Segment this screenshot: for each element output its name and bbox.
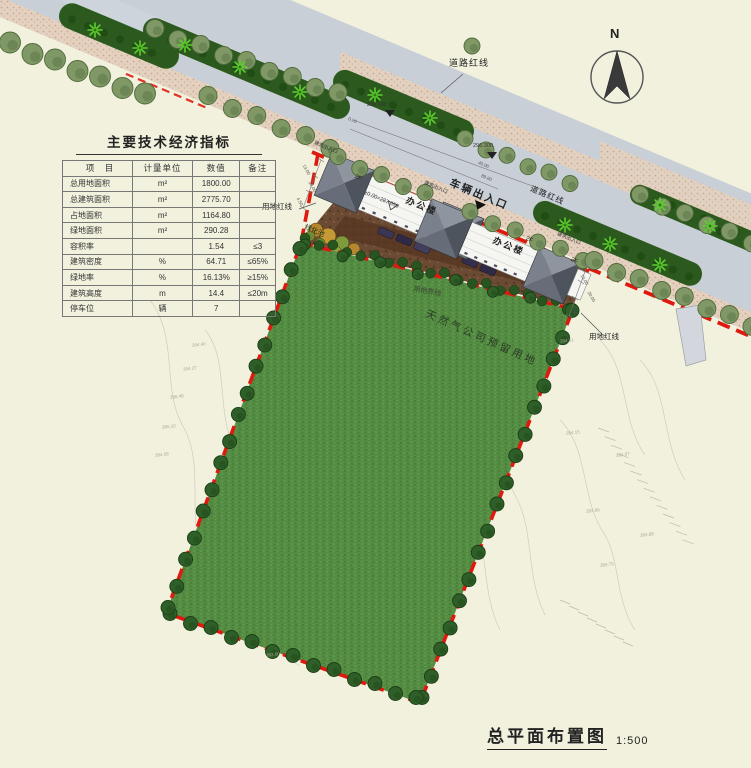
indicators-table-title: 主要技术经济指标: [76, 131, 262, 155]
table-row: 绿地面积m²290.28: [63, 223, 276, 239]
table-header-row: 项 目 计量单位 数值 备注: [63, 161, 276, 177]
title-block: 总平面布置图 1:500: [487, 722, 649, 750]
table-row: 总建筑面积m²2775.70: [63, 192, 276, 208]
table-row: 建筑高度m14.4≤20m: [63, 285, 276, 301]
drawing-scale: 1:500: [616, 735, 649, 750]
table-row: 建筑密度%64.71≤65%: [63, 254, 276, 270]
site-plan-canvas: 主要技术经济指标 项 目 计量单位 数值 备注 总用地面积m²1800.00 总…: [0, 0, 751, 768]
site-plan-drawing: [0, 0, 751, 768]
north-arrow-icon: [591, 51, 643, 103]
table-row: 总用地面积m²1800.00: [63, 176, 276, 192]
table-row: 绿地率%16.13%≥15%: [63, 270, 276, 286]
table-row: 停车位辆7: [63, 301, 276, 317]
table-row: 占地面积m²1164.80: [63, 207, 276, 223]
indicators-table: 主要技术经济指标 项 目 计量单位 数值 备注 总用地面积m²1800.00 总…: [62, 131, 276, 317]
table-row: 容积率1.54≤3: [63, 238, 276, 254]
drawing-title: 总平面布置图: [487, 722, 607, 750]
